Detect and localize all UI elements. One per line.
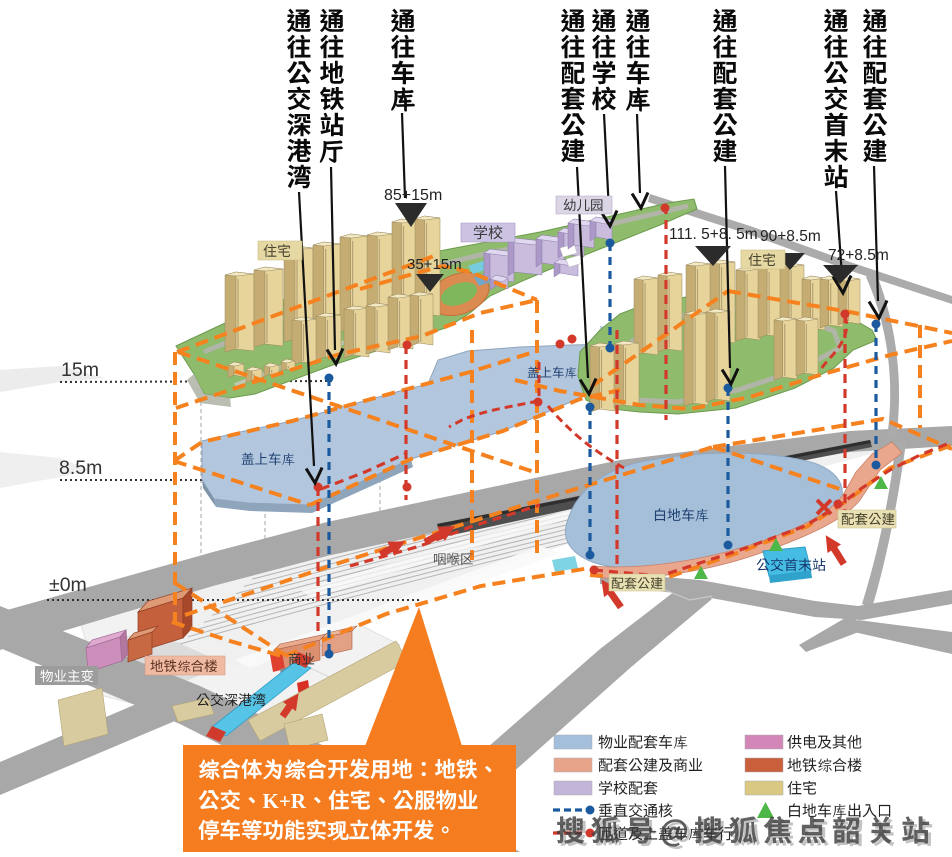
svg-text:111. 5+8. 5m: 111. 5+8. 5m bbox=[669, 226, 758, 243]
svg-text:15m: 15m bbox=[61, 359, 99, 381]
svg-text:85+15m: 85+15m bbox=[384, 187, 442, 204]
svg-text:90+8.5m: 90+8.5m bbox=[760, 228, 821, 245]
svg-text:通: 通 bbox=[643, 803, 658, 820]
svg-text:35+15m: 35+15m bbox=[407, 256, 462, 273]
svg-text:铁: 铁 bbox=[164, 659, 178, 674]
svg-text:K+R: K+R bbox=[263, 789, 307, 813]
svg-text:8.5m: 8.5m bbox=[59, 457, 102, 479]
svg-text:铁: 铁 bbox=[802, 758, 817, 775]
svg-text:72+8.5m: 72+8.5m bbox=[828, 247, 889, 264]
svg-text:±0m: ±0m bbox=[49, 574, 87, 596]
